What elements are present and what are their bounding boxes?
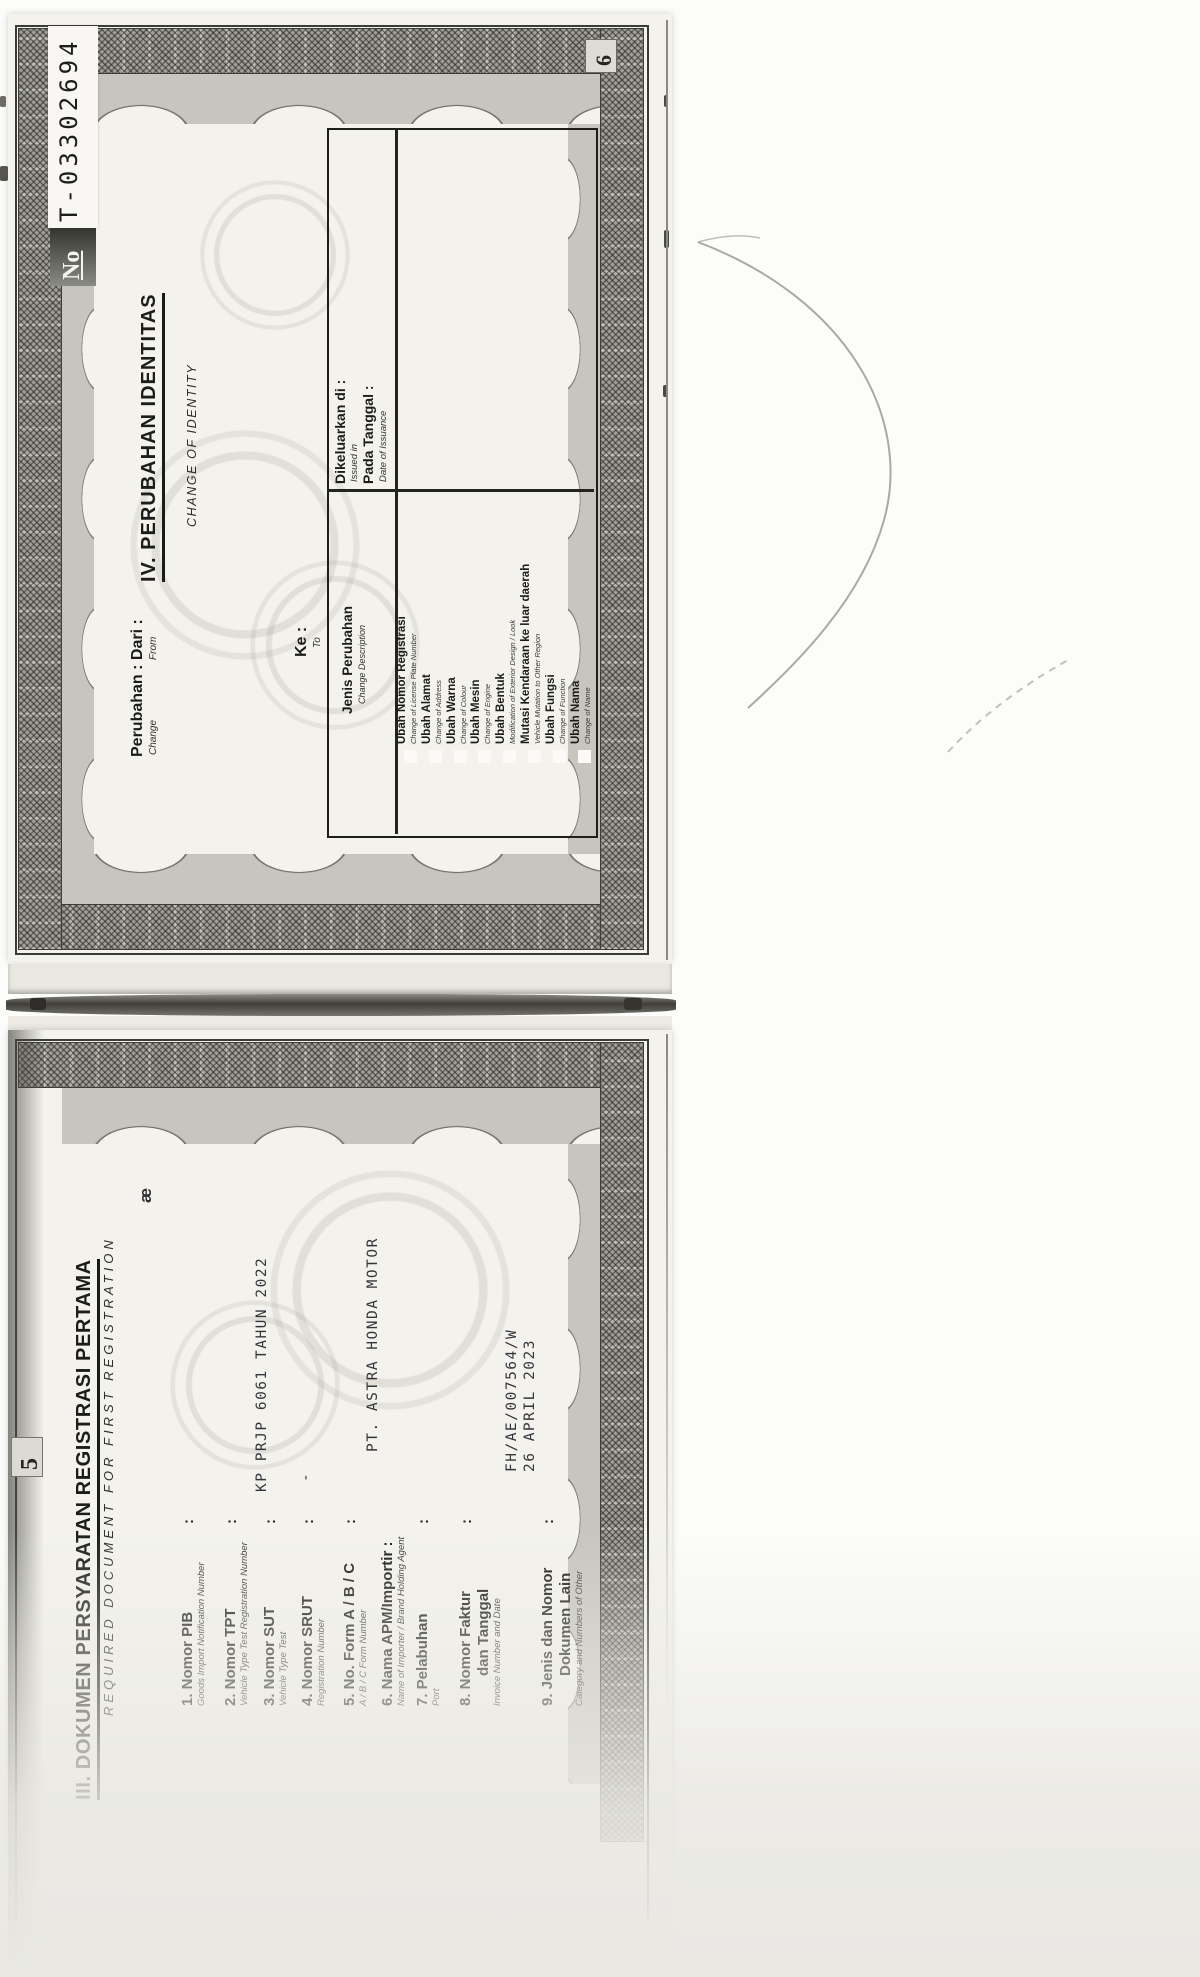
scanner-hair-artifact — [0, 0, 1200, 1977]
scan-canvas: T-03302694 No 6 IV. PERUBAHAN IDENTITAS … — [0, 0, 1200, 1977]
